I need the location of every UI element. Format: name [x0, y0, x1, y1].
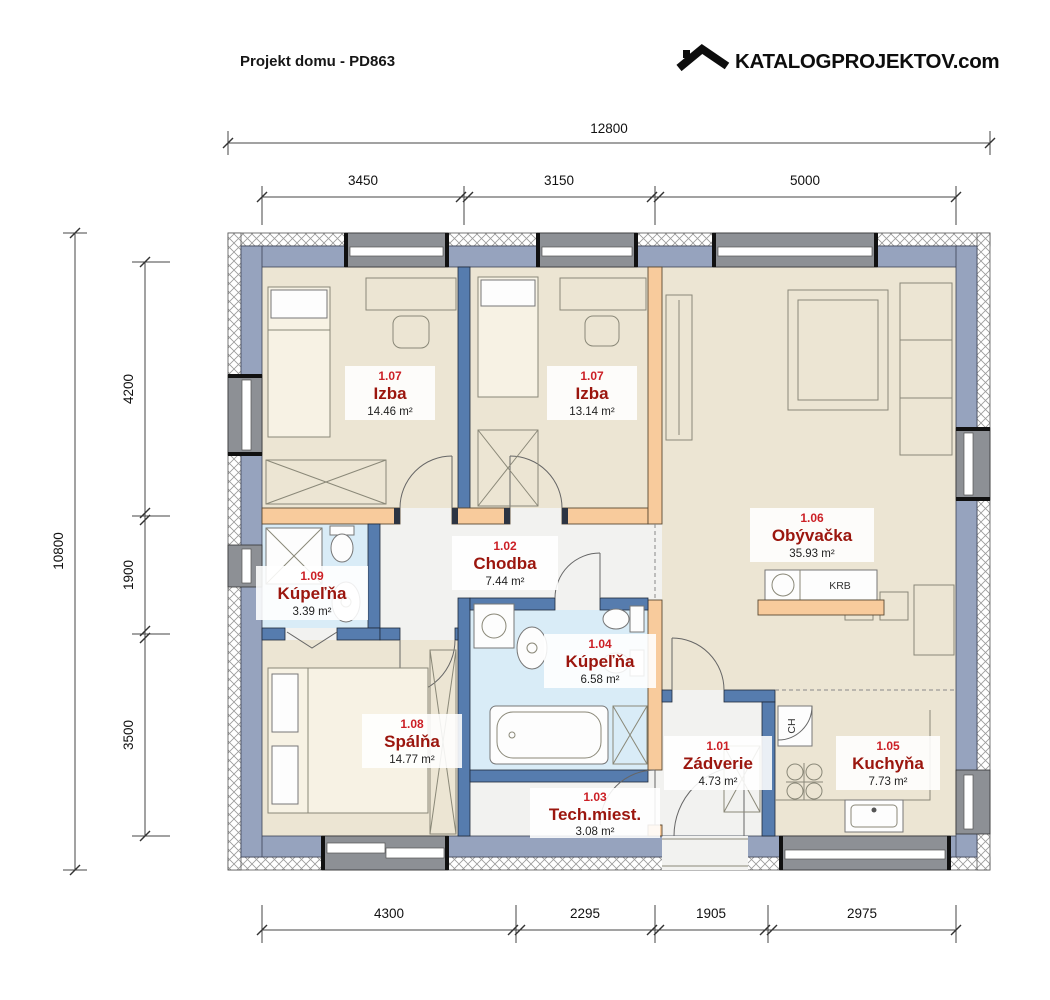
wall-izba2-obyvacka	[648, 267, 662, 524]
wall-kupelna109-chodba	[368, 524, 380, 628]
dimension-top-total: 12800	[223, 121, 995, 155]
spalna-area: 14.77 m²	[389, 754, 435, 766]
dim-top-2: 3150	[544, 173, 574, 188]
terrace-door-spalna	[321, 836, 449, 870]
dim-bottom-4: 2975	[847, 906, 877, 921]
entrance-opening	[662, 836, 748, 870]
window-obyvacka-right	[956, 427, 990, 501]
room-obyvacka-floor	[662, 267, 956, 690]
kupelna109-number: 1.09	[300, 569, 324, 583]
izba1-number: 1.07	[378, 369, 402, 383]
kuchyna-name: Kuchyňa	[852, 754, 924, 773]
brand-logo: KATALOGPROJEKTOV.com	[679, 49, 999, 73]
window-izba2-top	[536, 233, 638, 267]
kupelna109-name: Kúpeľňa	[278, 584, 347, 603]
dimension-bottom-segments: 4300 2295 1905 2975	[257, 905, 961, 943]
dim-bottom-3: 1905	[696, 906, 726, 921]
dimension-left-segments: 4200 1900 3500	[121, 257, 170, 841]
kupelna104-number: 1.04	[588, 637, 612, 651]
window-izba1-top	[344, 233, 449, 267]
dim-bottom-1: 4300	[374, 906, 404, 921]
dim-top-1: 3450	[348, 173, 378, 188]
dim-left-3: 3500	[121, 720, 136, 750]
brand-text: KATALOGPROJEKTOV.com	[735, 50, 999, 73]
label-zadverie: 1.01 Zádverie 4.73 m²	[664, 736, 772, 790]
dimension-left-total: 10800	[51, 228, 87, 875]
label-izba2: 1.07 Izba 13.14 m²	[547, 366, 637, 420]
tech-number: 1.03	[583, 790, 607, 804]
window-kuchyna-right	[956, 770, 990, 834]
label-kuchyna: 1.05 Kuchyňa 7.73 m²	[836, 736, 940, 790]
wall-kupelna104-tech	[470, 770, 648, 782]
chodba-name: Chodba	[473, 554, 537, 573]
label-obyvacka: 1.06 Obývačka 35.93 m²	[750, 508, 874, 562]
roof-icon-chimney	[683, 50, 690, 58]
obyvacka-name: Obývačka	[772, 526, 853, 545]
label-spalna: 1.08 Spálňa 14.77 m²	[362, 714, 462, 768]
tech-name: Tech.miest.	[549, 805, 641, 824]
wall-izba1-izba2	[458, 267, 470, 508]
label-kupelna109: 1.09 Kúpeľňa 3.39 m²	[256, 566, 368, 620]
window-izba1-left	[228, 374, 262, 456]
window-kuchyna-bottom	[779, 836, 951, 870]
kitchen-sink	[845, 800, 903, 832]
kupelna104-name: Kúpeľňa	[566, 652, 635, 671]
fireplace: KRB	[758, 570, 884, 615]
spalna-name: Spálňa	[384, 732, 440, 751]
izba2-number: 1.07	[580, 369, 604, 383]
chodba-area: 7.44 m²	[486, 576, 525, 588]
kupelna109-area: 3.39 m²	[293, 606, 332, 618]
zadverie-area: 4.73 m²	[699, 776, 738, 788]
floor-plan-drawing: Projekt domu - PD863 KATALOGPROJEKTOV.co…	[0, 0, 1050, 1000]
label-izba1: 1.07 Izba 14.46 m²	[345, 366, 435, 420]
fridge: CH	[778, 706, 812, 746]
izba2-name: Izba	[575, 384, 609, 403]
spalna-number: 1.08	[400, 717, 424, 731]
dim-bottom-2: 2295	[570, 906, 600, 921]
label-kupelna104: 1.04 Kúpeľňa 6.58 m²	[544, 634, 656, 688]
kuchyna-area: 7.73 m²	[869, 776, 908, 788]
obyvacka-number: 1.06	[800, 511, 824, 525]
dimension-top-segments: 3450 3150 5000	[257, 173, 961, 225]
dim-top-3: 5000	[790, 173, 820, 188]
kupelna104-area: 6.58 m²	[581, 674, 620, 686]
dim-left-total: 10800	[51, 532, 66, 570]
fireplace-label: KRB	[829, 580, 851, 592]
izba1-name: Izba	[373, 384, 407, 403]
dim-top-total: 12800	[590, 121, 628, 136]
dim-left-2: 1900	[121, 560, 136, 590]
label-tech: 1.03 Tech.miest. 3.08 m²	[530, 788, 660, 838]
window-obyvacka-top	[712, 233, 878, 267]
izba1-area: 14.46 m²	[367, 406, 413, 418]
zadverie-number: 1.01	[706, 739, 730, 753]
label-chodba: 1.02 Chodba 7.44 m²	[452, 536, 558, 590]
page-title: Projekt domu - PD863	[240, 53, 395, 70]
floor-plan-page: Projekt domu - PD863 KATALOGPROJEKTOV.co…	[0, 0, 1050, 1000]
fridge-label: CH	[786, 718, 798, 733]
obyvacka-area: 35.93 m²	[789, 548, 835, 560]
kuchyna-number: 1.05	[876, 739, 900, 753]
tech-area: 3.08 m²	[576, 826, 615, 838]
dim-left-1: 4200	[121, 374, 136, 404]
chodba-number: 1.02	[493, 539, 517, 553]
zadverie-name: Zádverie	[683, 754, 753, 773]
izba2-area: 13.14 m²	[569, 406, 615, 418]
